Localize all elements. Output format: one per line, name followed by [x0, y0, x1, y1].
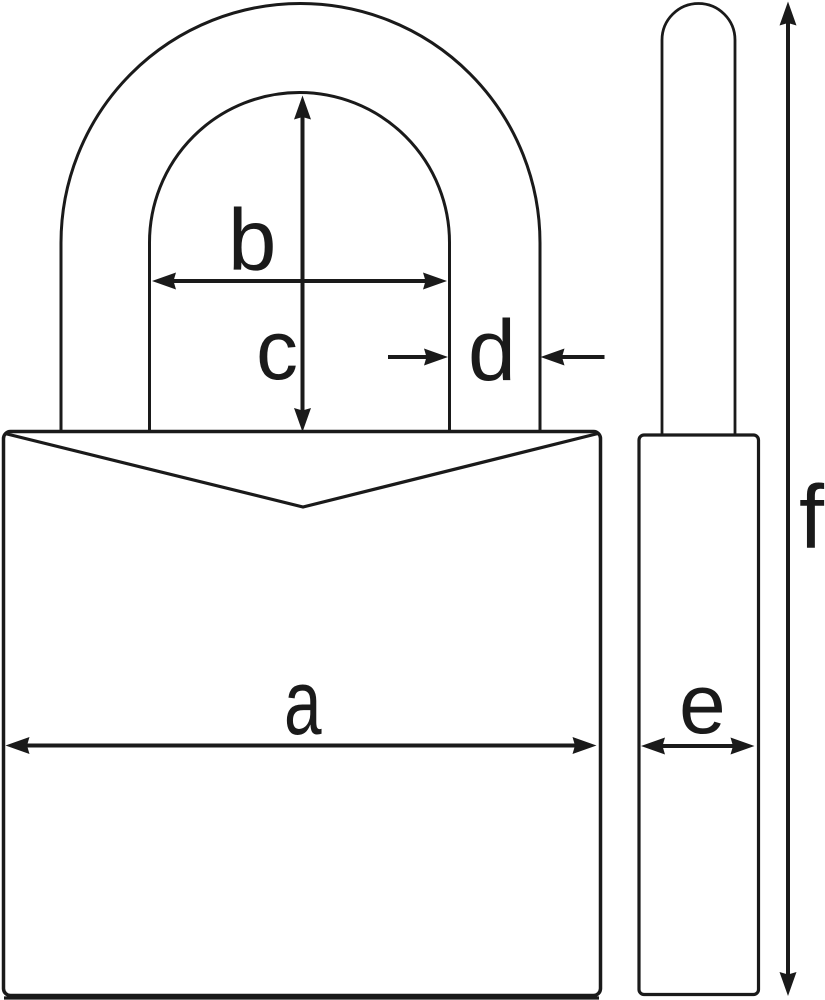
svg-text:b: b	[228, 192, 276, 289]
svg-text:f: f	[799, 468, 825, 568]
svg-text:a: a	[284, 652, 322, 755]
svg-text:d: d	[468, 303, 516, 399]
svg-text:c: c	[256, 303, 298, 397]
svg-text:e: e	[679, 657, 726, 751]
